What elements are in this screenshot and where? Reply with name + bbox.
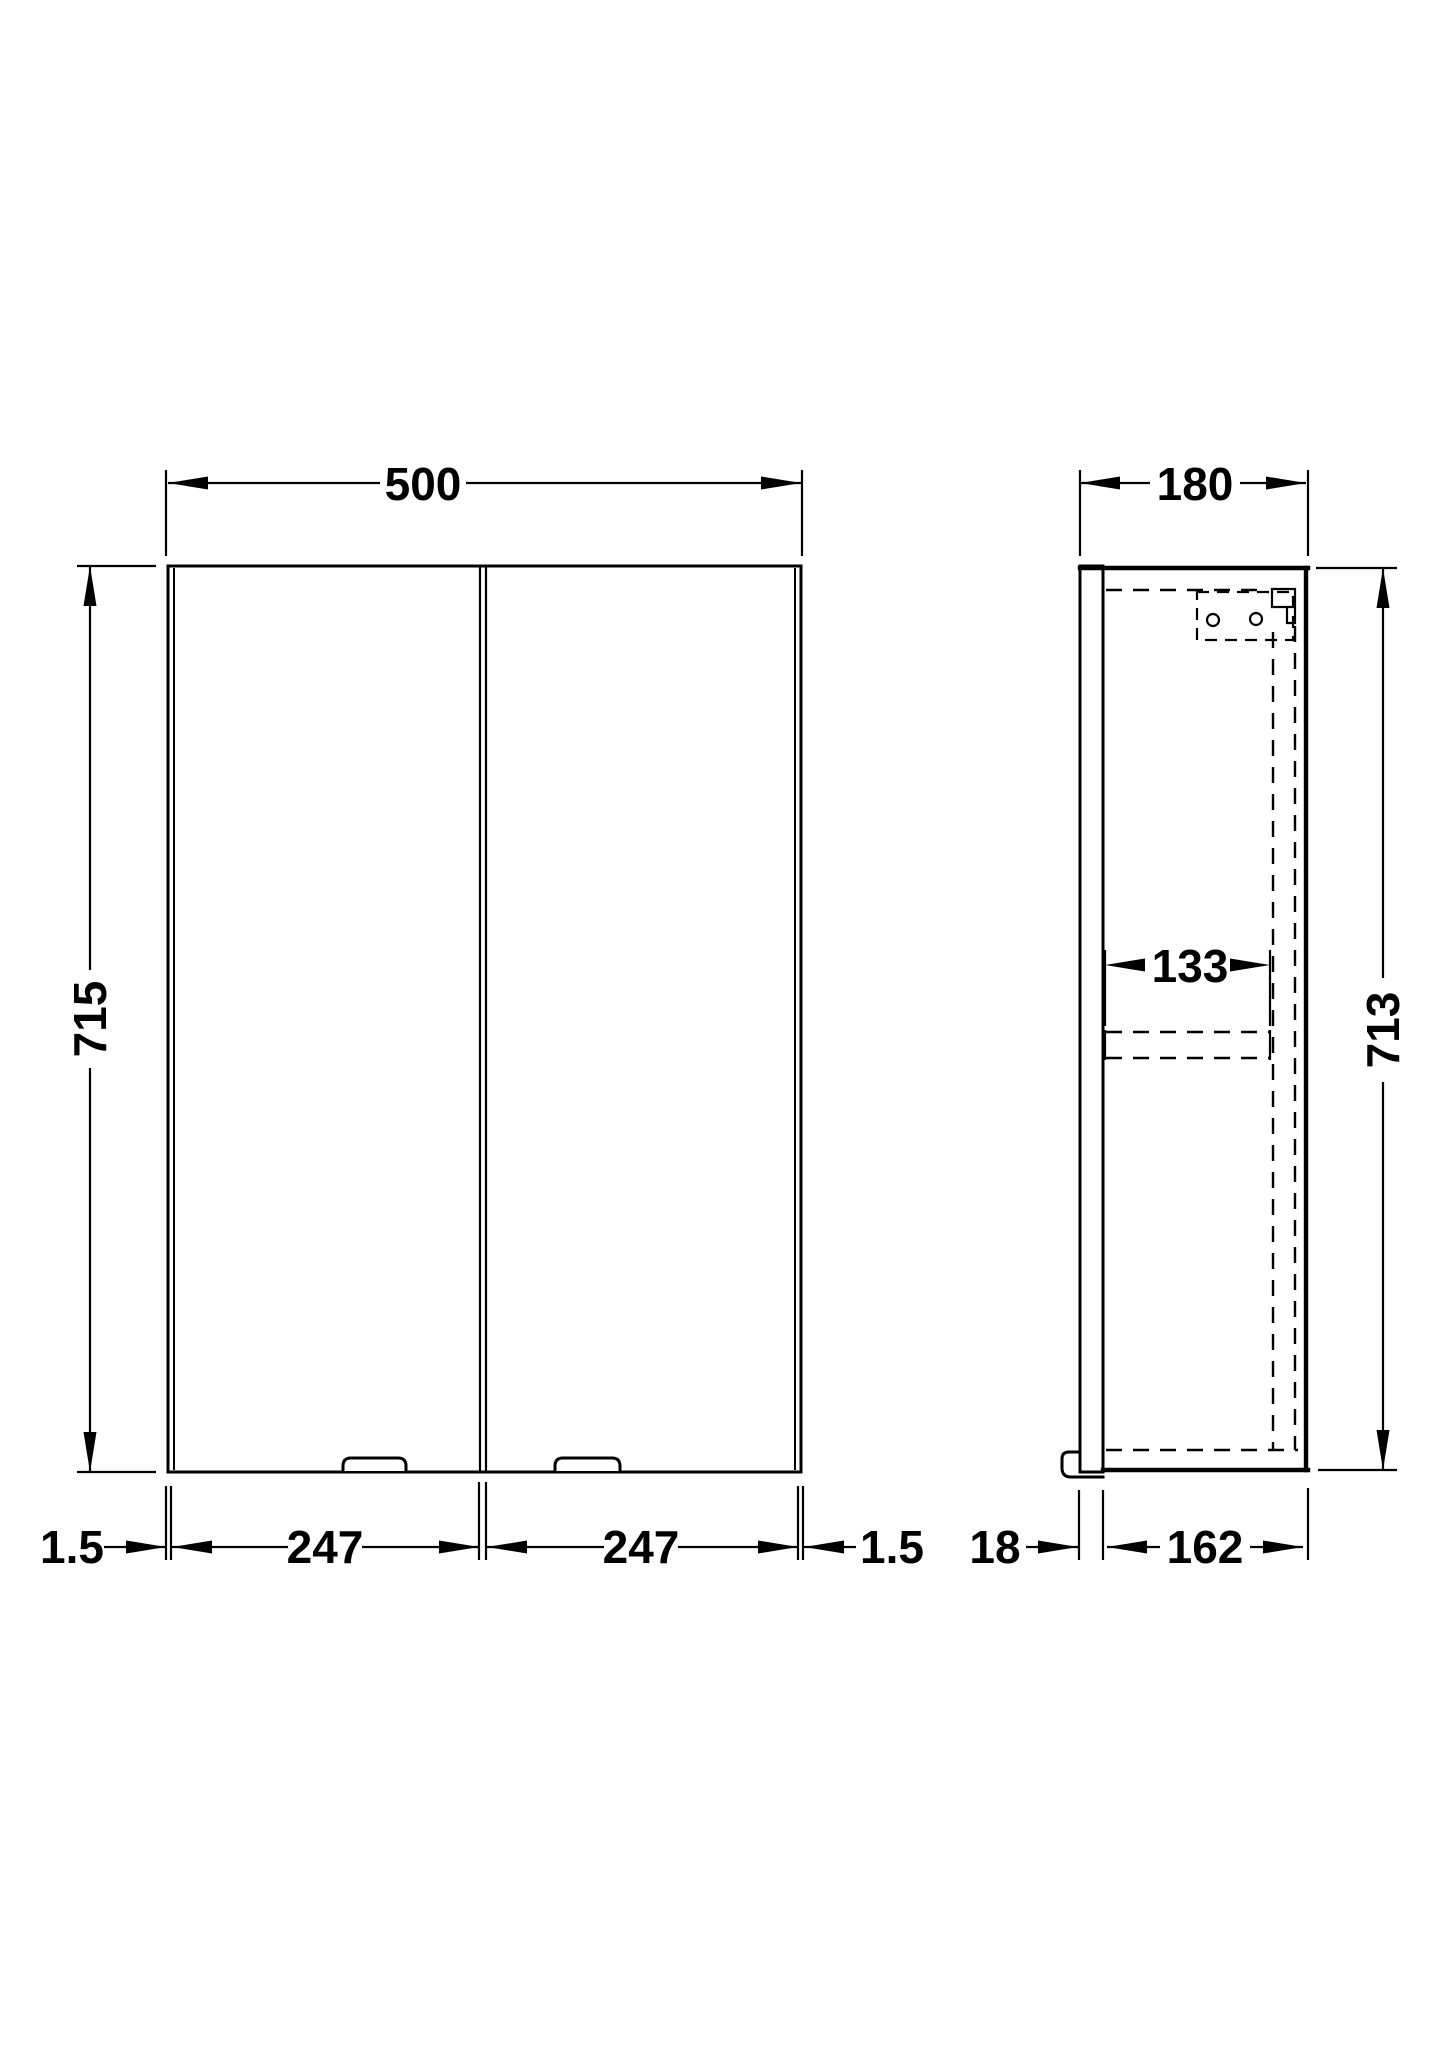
- bracket-screw-icon: [1207, 614, 1219, 626]
- arrowhead-right: [1230, 959, 1270, 972]
- side-wall-bracket: [1272, 589, 1295, 623]
- arrowhead-left: [1107, 1541, 1147, 1554]
- front-view: [168, 566, 801, 1472]
- side-carcass-depth-label: 162: [1167, 1521, 1244, 1573]
- arrowhead-down: [84, 1432, 97, 1472]
- extension-line-right-edge: [798, 1486, 803, 1560]
- side-shelf-hidden-edges: [1106, 1032, 1270, 1058]
- arrowhead-left: [168, 477, 208, 490]
- side-shelf-end-caps: [1105, 1030, 1270, 1060]
- arrowhead-right: [758, 1541, 798, 1554]
- side-height-label: 713: [1357, 992, 1409, 1069]
- dim-side-bottom: 18 162: [969, 1488, 1308, 1573]
- extension-line-left-edge: [166, 1486, 171, 1560]
- arrowhead-down: [1377, 1430, 1390, 1470]
- front-left-gap-label: 1.5: [40, 1521, 104, 1573]
- arrowhead-left: [1105, 959, 1145, 972]
- dim-front-bottom: 1.5 247 247 1.5: [40, 1482, 924, 1573]
- arrowhead-left: [1080, 477, 1120, 490]
- arrowhead-left: [804, 1541, 844, 1554]
- arrowhead-up: [84, 566, 97, 606]
- side-internal-depth-label: 133: [1152, 940, 1229, 992]
- technical-drawing-svg: 500 715 1.5 247 247 1.5: [0, 0, 1445, 2045]
- arrowhead-right: [1263, 1541, 1303, 1554]
- front-left-door-handle: [343, 1458, 406, 1471]
- front-cabinet-outline: [168, 566, 801, 1472]
- side-door-thickness-label: 18: [969, 1521, 1020, 1573]
- arrowhead-right: [761, 477, 801, 490]
- side-depth-label: 180: [1157, 458, 1234, 510]
- arrowhead-right: [439, 1541, 479, 1554]
- arrowhead-right: [1266, 477, 1306, 490]
- dim-side-internal-depth: 133: [1105, 940, 1270, 1026]
- arrowhead-right: [126, 1541, 166, 1554]
- side-door-panel: [1080, 566, 1103, 1472]
- front-left-door-width-label: 247: [287, 1521, 364, 1573]
- dim-side-height: 713: [1316, 568, 1409, 1470]
- bracket-screw-icon: [1250, 613, 1262, 625]
- arrowhead-right: [1038, 1541, 1078, 1554]
- front-right-gap-label: 1.5: [860, 1521, 924, 1573]
- dim-front-width: 500: [166, 458, 802, 556]
- dim-front-height: 715: [64, 566, 156, 1472]
- arrowhead-left: [487, 1541, 527, 1554]
- extension-line-divider: [479, 1482, 486, 1560]
- front-right-door-width-label: 247: [603, 1521, 680, 1573]
- arrowhead-left: [172, 1541, 212, 1554]
- dim-side-depth: 180: [1080, 458, 1308, 556]
- front-width-label: 500: [385, 458, 462, 510]
- front-height-label: 715: [64, 981, 116, 1058]
- arrowhead-up: [1377, 568, 1390, 608]
- drawing-canvas: 500 715 1.5 247 247 1.5: [0, 0, 1445, 2045]
- extension-line-door: [1079, 1490, 1103, 1560]
- front-right-door-handle: [555, 1458, 620, 1471]
